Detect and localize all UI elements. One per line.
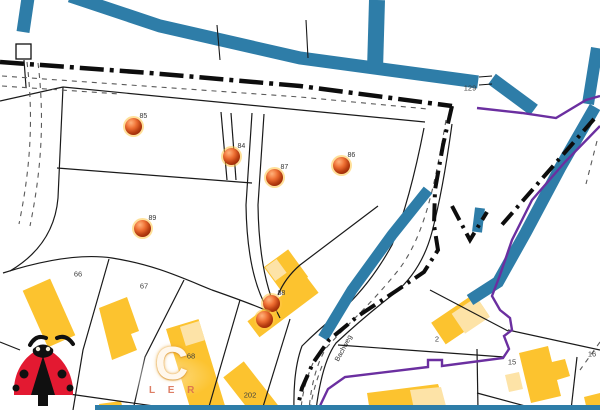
survey-point-number: 86 xyxy=(348,152,356,159)
ladybug-spot xyxy=(20,370,29,379)
ladybug-logo xyxy=(13,337,74,406)
survey-point-number: 84 xyxy=(238,143,246,150)
stream xyxy=(588,48,597,104)
survey-point-marker[interactable]: 84 xyxy=(223,148,240,165)
ladybug-spot xyxy=(13,385,20,392)
ladybug-spot xyxy=(67,385,74,392)
stream xyxy=(492,79,534,110)
logo-text-fragment xyxy=(38,393,48,406)
survey-point-marker[interactable] xyxy=(256,311,273,328)
survey-point-marker[interactable]: 88 xyxy=(263,295,280,312)
ladybug-spot xyxy=(58,370,67,379)
building xyxy=(223,361,280,410)
ladybug-antenna-icon xyxy=(30,337,46,345)
building xyxy=(519,346,570,403)
survey-point-marker[interactable]: 89 xyxy=(134,220,151,237)
stream xyxy=(470,107,595,300)
admin-boundary-layer xyxy=(0,62,594,410)
parcel-number-label: 129 xyxy=(464,84,477,92)
building-light-part xyxy=(505,372,523,392)
survey-point-marker[interactable]: 87 xyxy=(266,169,283,186)
parcel-number-label: 16 xyxy=(588,350,596,358)
survey-point-number: 87 xyxy=(281,164,289,171)
watermark-letters: L E R xyxy=(149,385,199,396)
parcel-number-label: 202 xyxy=(244,391,257,399)
stream xyxy=(375,0,377,70)
map-layers xyxy=(0,0,600,410)
survey-point-marker[interactable]: 86 xyxy=(333,157,350,174)
parcel-number-label: 15 xyxy=(508,358,516,366)
stream xyxy=(323,190,428,338)
parcel-number-label: 2 xyxy=(435,335,439,343)
survey-point-number: 88 xyxy=(278,290,286,297)
stream-bottom-strip xyxy=(95,405,600,410)
survey-point-number: 89 xyxy=(149,215,157,222)
stream xyxy=(477,208,480,232)
survey-point-number: 85 xyxy=(140,113,148,120)
parcel-number-label: 66 xyxy=(74,270,82,278)
watermark-letter: C xyxy=(155,340,188,386)
survey-point-marker[interactable]: 85 xyxy=(125,118,142,135)
parcel-number-label: 68 xyxy=(187,352,195,360)
stream xyxy=(23,0,28,32)
parcel-number-label: 67 xyxy=(140,282,148,290)
map-canvas[interactable]: Bachweg C L E R 129666768202215168584878… xyxy=(0,0,600,410)
